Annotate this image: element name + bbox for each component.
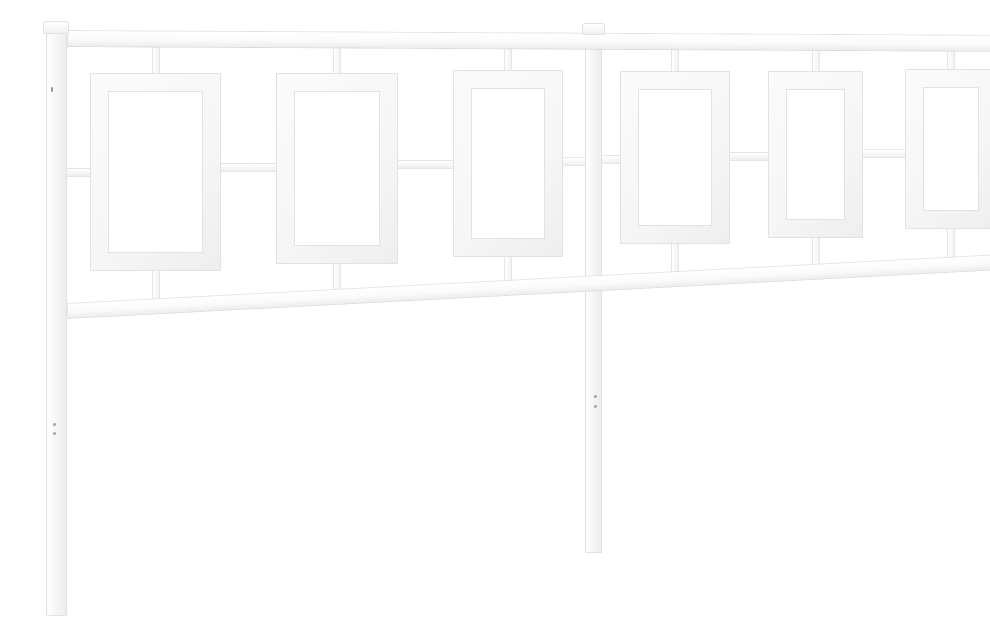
panel-frame-3 — [453, 70, 563, 257]
top-stub — [333, 44, 341, 76]
mid-connector — [396, 160, 456, 169]
paint-speck — [51, 87, 53, 92]
panel-opening — [471, 88, 545, 239]
panel-opening — [786, 89, 845, 220]
top-stub — [152, 44, 160, 76]
bottom-stub — [947, 226, 955, 260]
mid-connector — [64, 168, 93, 177]
panel-opening — [108, 91, 203, 253]
panel-frame-2 — [276, 73, 398, 264]
left-leg-cap — [43, 21, 69, 34]
bottom-stub — [812, 235, 820, 266]
headboard-product-photo — [40, 16, 990, 624]
bottom-stub — [504, 254, 512, 283]
mid-connector — [219, 163, 278, 172]
panel-frame-6 — [905, 69, 990, 229]
top-rail — [67, 30, 990, 52]
bottom-stub — [152, 268, 160, 301]
bottom-stub — [671, 241, 679, 274]
panel-opening — [923, 87, 979, 211]
left-leg — [46, 32, 67, 616]
panel-opening — [638, 89, 712, 226]
screw-hole — [594, 395, 597, 398]
screw-hole — [594, 405, 597, 408]
center-leg — [585, 34, 602, 553]
panel-frame-1 — [90, 73, 221, 271]
panel-frame-4 — [620, 71, 730, 244]
mid-connector — [600, 155, 622, 164]
panel-opening — [294, 91, 380, 246]
screw-hole — [53, 423, 56, 426]
bottom-stub — [333, 261, 341, 292]
mid-connector — [861, 149, 907, 158]
panel-frame-5 — [768, 71, 863, 238]
mid-connector — [728, 152, 770, 161]
mid-connector — [561, 157, 587, 166]
center-leg-cap — [582, 23, 605, 35]
screw-hole — [53, 432, 56, 435]
